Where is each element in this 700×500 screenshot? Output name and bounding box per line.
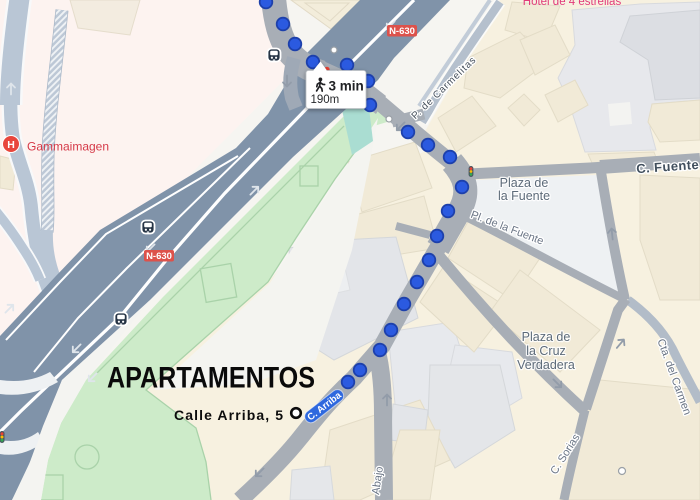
svg-text:Gammaimagen: Gammaimagen (27, 140, 109, 154)
svg-text:Verdadera: Verdadera (517, 358, 575, 372)
svg-text:la Fuente: la Fuente (498, 189, 550, 203)
svg-text:Hotel de 4 estrellas: Hotel de 4 estrellas (523, 0, 622, 8)
svg-text:3 min: 3 min (329, 79, 364, 94)
svg-text:N-630: N-630 (146, 251, 172, 262)
svg-text:APARTAMENTOS: APARTAMENTOS (107, 360, 315, 394)
svg-text:N-630: N-630 (389, 26, 415, 37)
svg-text:Calle Arriba, 5: Calle Arriba, 5 (174, 407, 284, 423)
svg-text:la Cruz: la Cruz (526, 344, 566, 358)
svg-text:190m: 190m (311, 94, 340, 106)
svg-text:Plaza de: Plaza de (500, 176, 549, 190)
svg-text:Plaza de: Plaza de (522, 330, 571, 344)
svg-text:H: H (7, 139, 15, 151)
